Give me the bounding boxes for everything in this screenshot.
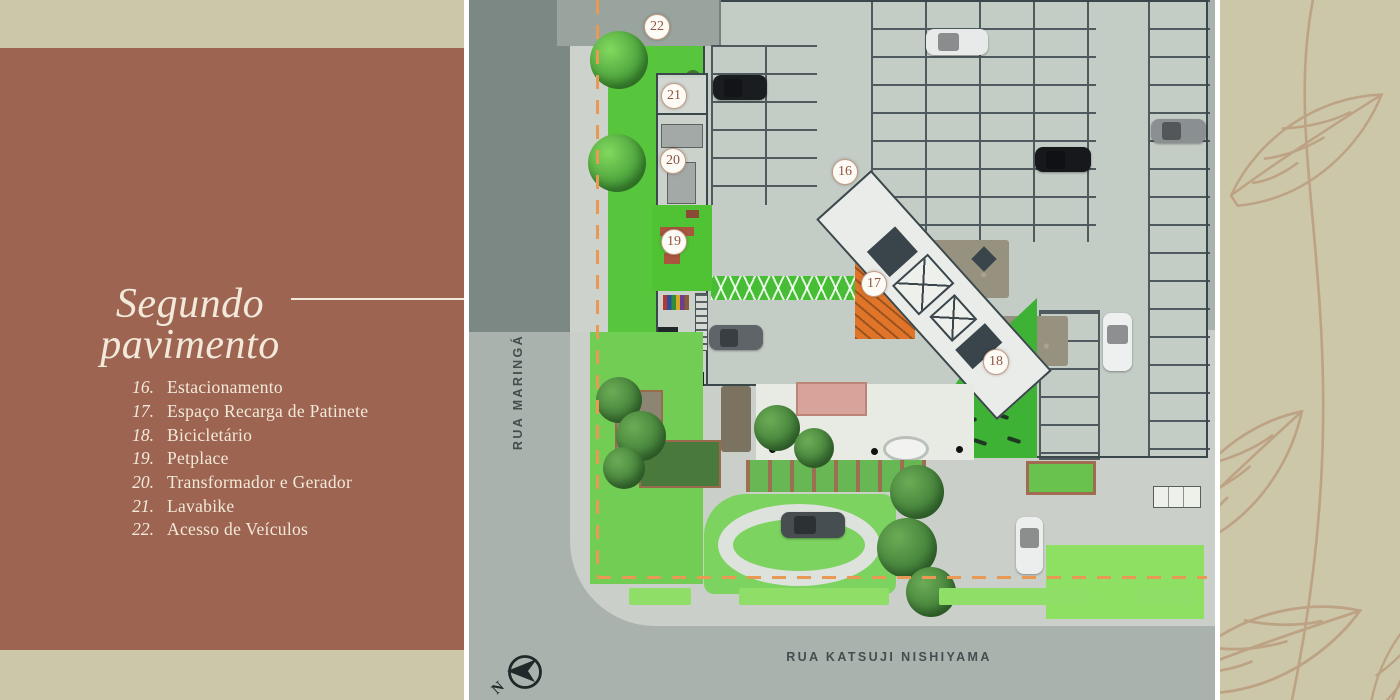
- transformer-box: [661, 124, 703, 148]
- title-line-2: pavimento: [100, 322, 279, 368]
- legend-num: 20.: [86, 472, 154, 493]
- gravel-bed-south: [721, 386, 751, 452]
- legend-num: 19.: [86, 448, 154, 469]
- marker-number: 21: [667, 88, 681, 104]
- legend-item-16: 16.Estacionamento: [86, 376, 368, 400]
- legend-label: Bicicletário: [167, 425, 252, 446]
- map-marker-18: 18: [983, 349, 1009, 375]
- street-median-green: [939, 588, 1089, 605]
- marker-number: 16: [838, 164, 852, 180]
- map-marker-17: 17: [861, 271, 887, 297]
- pedestrian-path-line: [597, 576, 1207, 579]
- entrance-canopy: [796, 382, 867, 416]
- site-plan-frame: RUA MARINGÁ RUA KATSUJI NISHIYAMA N 16 1…: [464, 0, 1220, 700]
- map-marker-22: 22: [644, 14, 670, 40]
- legend-item-19: 19.Petplace: [86, 447, 368, 471]
- car-gray: [709, 325, 763, 350]
- compass-north-label: N: [489, 679, 508, 698]
- map-marker-20: 20: [660, 148, 686, 174]
- locker-row: [663, 295, 689, 310]
- legend-num: 18.: [86, 425, 154, 446]
- garden-bed-east: [1026, 461, 1096, 495]
- title-rule: [291, 298, 464, 300]
- leaf-line-art: [1220, 0, 1400, 700]
- car-white: [1103, 313, 1132, 371]
- marker-number: 20: [666, 153, 680, 169]
- compass-icon: N: [485, 648, 557, 700]
- car-white: [1016, 517, 1043, 574]
- street-label-rua-maringa: RUA MARINGÁ: [511, 334, 525, 450]
- pedestrian-path-line: [596, 0, 599, 576]
- tree: [890, 465, 944, 519]
- map-marker-16: 16: [832, 159, 858, 185]
- legend-panel: Segundo pavimento 16.Estacionamento 17.E…: [0, 48, 464, 650]
- marker-number: 19: [667, 234, 681, 250]
- legend-label: Estacionamento: [167, 377, 283, 398]
- legend-num: 16.: [86, 377, 154, 398]
- parking-stalls-east: [1148, 0, 1210, 456]
- pet-equipment: [686, 210, 699, 218]
- legend-num: 21.: [86, 496, 154, 517]
- tree: [754, 405, 800, 451]
- street-median-green: [1137, 588, 1195, 605]
- legend-item-21: 21.Lavabike: [86, 494, 368, 518]
- legend-label: Acesso de Veículos: [167, 519, 308, 540]
- legend-item-20: 20.Transformador e Gerador: [86, 471, 368, 495]
- parking-stalls-west: [711, 45, 817, 205]
- car-gray: [1151, 119, 1206, 143]
- tree: [603, 447, 645, 489]
- column-dot: [871, 448, 878, 455]
- legend-item-22: 22.Acesso de Veículos: [86, 518, 368, 542]
- legend-label: Lavabike: [167, 496, 235, 517]
- shelter-structure: [1153, 486, 1201, 508]
- legend-num: 17.: [86, 401, 154, 422]
- legend-item-17: 17.Espaço Recarga de Patinete: [86, 400, 368, 424]
- water-feature: [883, 436, 929, 462]
- marker-number: 17: [867, 276, 881, 292]
- legend-item-18: 18.Bicicletário: [86, 423, 368, 447]
- legend-label: Espaço Recarga de Patinete: [167, 401, 368, 422]
- site-plan: RUA MARINGÁ RUA KATSUJI NISHIYAMA N 16 1…: [469, 0, 1215, 700]
- legend-num: 22.: [86, 519, 154, 540]
- street-median-green: [629, 588, 691, 605]
- car-black: [1035, 147, 1091, 172]
- legend-label: Transformador e Gerador: [167, 472, 352, 493]
- car-black: [713, 75, 767, 100]
- legend-list: 16.Estacionamento 17.Espaço Recarga de P…: [86, 376, 368, 542]
- marker-number: 18: [989, 354, 1003, 370]
- brochure-page: Segundo pavimento 16.Estacionamento 17.E…: [0, 0, 1400, 700]
- tree: [794, 428, 834, 468]
- page-title: Segundo pavimento: [70, 284, 310, 366]
- map-marker-19: 19: [661, 229, 687, 255]
- marker-number: 22: [650, 19, 664, 35]
- street-rua-maringa-upper: [469, 0, 570, 332]
- car-gray: [781, 512, 845, 538]
- title-line-1: Segundo: [116, 281, 264, 327]
- column-dot: [956, 446, 963, 453]
- car-white: [926, 29, 988, 55]
- street-label-rua-katsuji-nishiyama: RUA KATSUJI NISHIYAMA: [786, 650, 992, 664]
- lawn-southeast: [1046, 545, 1204, 619]
- legend-label: Petplace: [167, 448, 229, 469]
- map-marker-21: 21: [661, 83, 687, 109]
- street-median-green: [739, 588, 889, 605]
